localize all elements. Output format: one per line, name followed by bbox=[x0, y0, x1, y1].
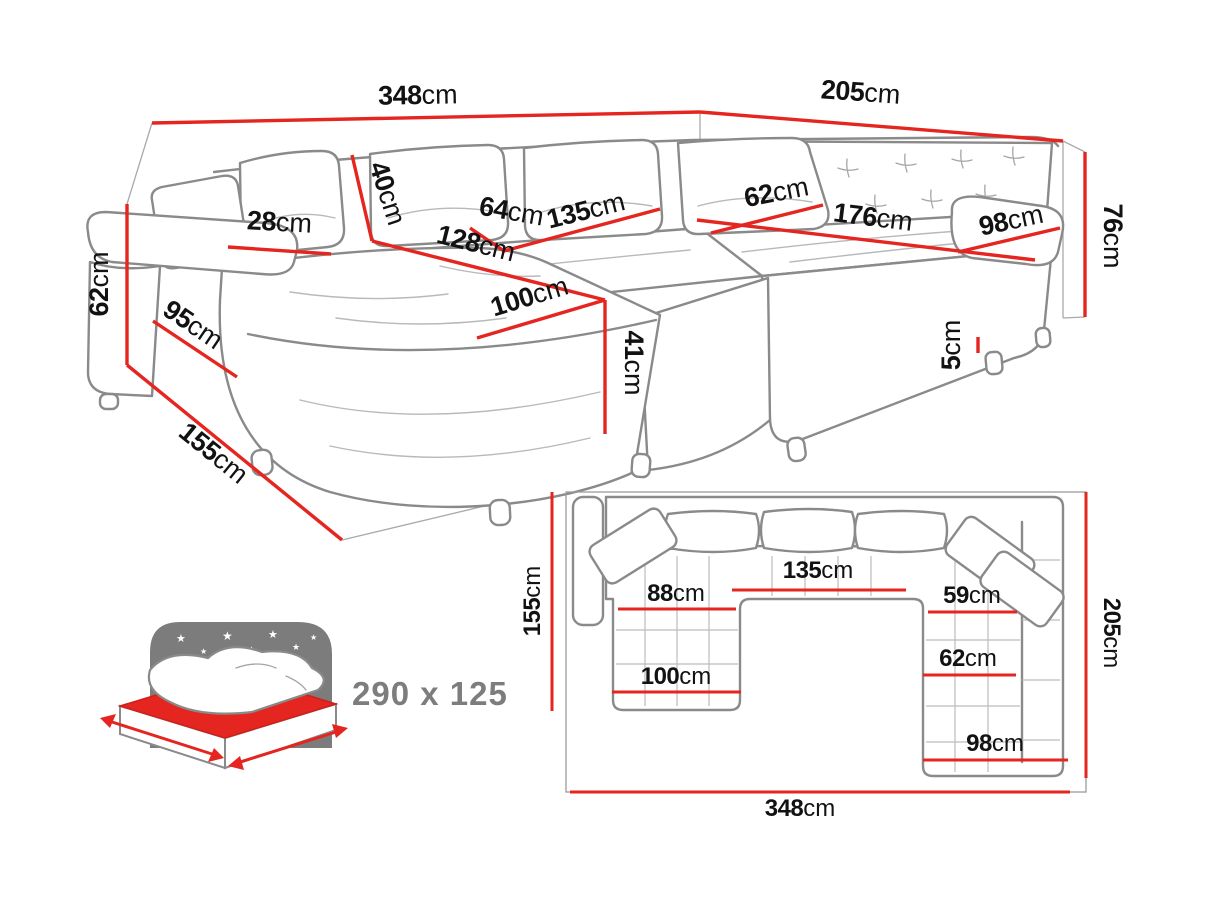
dimension-label-28: 28cm bbox=[246, 205, 313, 238]
dimension-label-155: 155cm bbox=[173, 416, 254, 489]
sofa-leg bbox=[489, 499, 510, 525]
dimension-line-348 bbox=[152, 112, 700, 123]
guide-line bbox=[1063, 141, 1085, 152]
plan-label-205: 205cm bbox=[1098, 598, 1125, 669]
plan-label-98: 98cm bbox=[966, 730, 1024, 757]
dim-value: 348 bbox=[378, 80, 423, 111]
svg-text:★: ★ bbox=[310, 633, 317, 642]
plan-label-135: 135cm bbox=[783, 557, 854, 584]
plan-label-348: 348cm bbox=[765, 795, 836, 822]
guide-line bbox=[1063, 317, 1085, 318]
sofa-chaise-body bbox=[220, 248, 660, 507]
svg-text:★: ★ bbox=[268, 628, 278, 641]
sofa-leg bbox=[100, 394, 118, 409]
guide-line bbox=[127, 123, 152, 204]
perspective-view-sketch: 348cm 205cm 62cm 28cm 95cm 155cm 40cm 64… bbox=[84, 74, 1128, 540]
sofa-front-corner bbox=[640, 278, 770, 470]
dimension-diagram-canvas: 348cm 205cm 62cm 28cm 95cm 155cm 40cm 64… bbox=[0, 0, 1214, 911]
svg-text:★: ★ bbox=[292, 643, 300, 653]
svg-text:★: ★ bbox=[200, 647, 207, 656]
sofa-leg bbox=[251, 449, 274, 476]
back-pillow bbox=[524, 140, 662, 240]
sleeping-function-icon: ★ ★ ★ ★ ★ ★ ★ ★ ★ ★ ★ ★ ★ ★ ★ ★ ★ bbox=[100, 622, 508, 770]
dimension-label-348: 348cm bbox=[378, 79, 458, 110]
sleeping-size-label: 290 x 125 bbox=[352, 675, 508, 712]
plan-label-62: 62cm bbox=[939, 645, 997, 672]
plan-view-sketch: 155cm 205cm 348cm 88cm 100cm 135cm 59cm … bbox=[519, 492, 1125, 822]
sofa-leg bbox=[1035, 327, 1051, 347]
plan-pillow bbox=[855, 511, 947, 552]
dimension-label-62-left: 62cm bbox=[84, 251, 114, 316]
plan-label-59: 59cm bbox=[943, 582, 1001, 609]
sofa-leg bbox=[787, 437, 807, 462]
dimension-line-205 bbox=[700, 112, 1063, 141]
dim-unit: cm bbox=[421, 79, 458, 110]
svg-text:★: ★ bbox=[176, 632, 186, 645]
sofa-leg bbox=[631, 453, 651, 477]
plan-pillow bbox=[665, 511, 759, 552]
plan-label-100: 100cm bbox=[641, 663, 712, 690]
furniture-dimension-sheet: 348cm 205cm 62cm 28cm 95cm 155cm 40cm 64… bbox=[0, 0, 1214, 911]
sofa-leg bbox=[985, 351, 1003, 374]
svg-text:★: ★ bbox=[222, 629, 233, 643]
plan-label-88: 88cm bbox=[647, 580, 705, 607]
dimension-label-5: 5cm bbox=[936, 320, 966, 371]
dimension-label-76: 76cm bbox=[1098, 203, 1128, 268]
plan-pillow bbox=[761, 509, 855, 552]
sofa-front-right bbox=[762, 248, 1052, 442]
plan-label-155: 155cm bbox=[519, 566, 546, 637]
dimension-label-205: 205cm bbox=[820, 74, 901, 109]
dimension-label-41: 41cm bbox=[619, 330, 649, 395]
